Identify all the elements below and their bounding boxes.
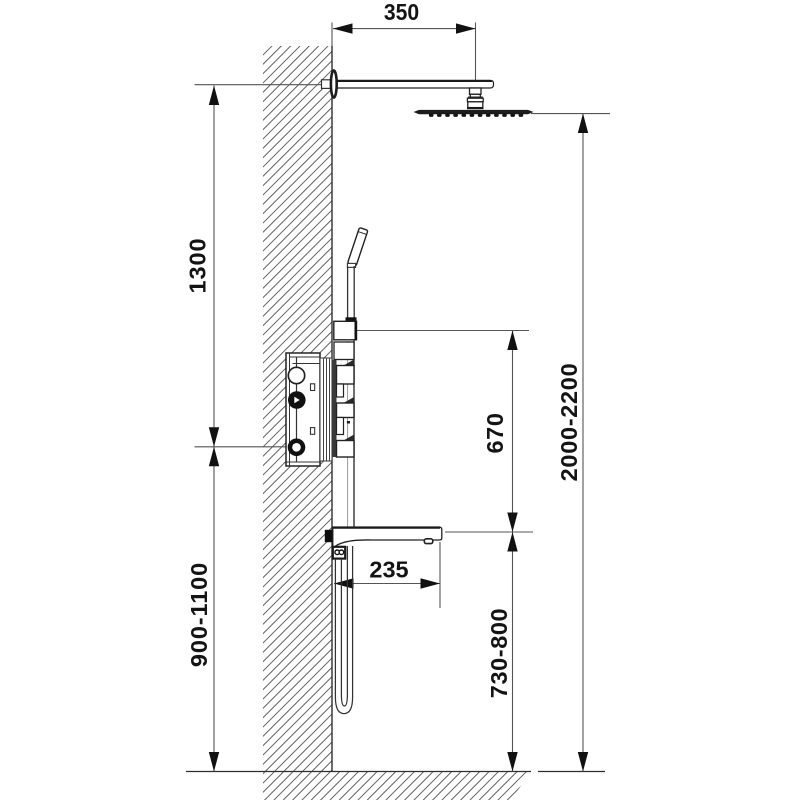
svg-text:2000-2200: 2000-2200 xyxy=(556,363,582,482)
svg-text:900-1100: 900-1100 xyxy=(186,562,212,667)
svg-text:235: 235 xyxy=(369,557,408,583)
svg-text:670: 670 xyxy=(482,412,508,453)
svg-text:350: 350 xyxy=(384,0,419,25)
svg-text:1300: 1300 xyxy=(185,238,211,294)
svg-text:730-800: 730-800 xyxy=(486,608,512,698)
